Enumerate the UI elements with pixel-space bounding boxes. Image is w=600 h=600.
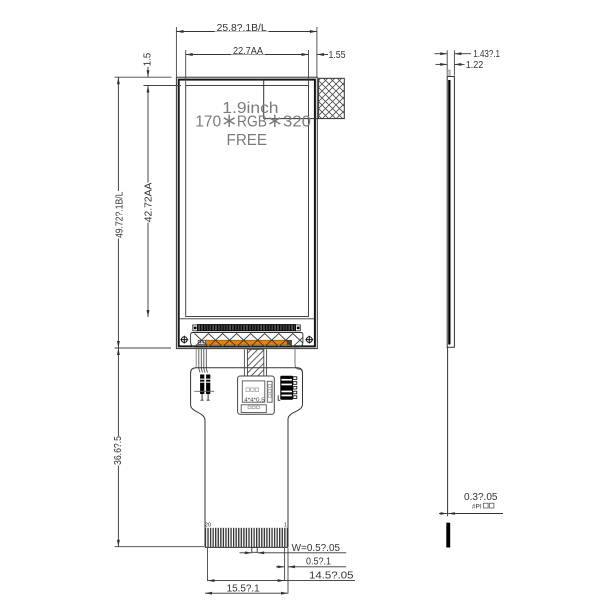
svg-text:25.8?.1B/L: 25.8?.1B/L xyxy=(217,23,268,34)
svg-text:320: 320 xyxy=(283,113,311,130)
svg-text:1.22: 1.22 xyxy=(466,60,484,71)
svg-text:1.5: 1.5 xyxy=(143,53,154,67)
svg-text:W=0.5?.05: W=0.5?.05 xyxy=(292,543,340,554)
svg-text:0.3?.05: 0.3?.05 xyxy=(464,492,498,503)
svg-text:42.72AA: 42.72AA xyxy=(144,182,155,222)
svg-text:170: 170 xyxy=(195,113,221,130)
svg-text:FREE: FREE xyxy=(227,132,268,149)
svg-text:15.5?.1: 15.5?.1 xyxy=(227,584,260,595)
svg-text:4*4*0.5: 4*4*0.5 xyxy=(244,397,265,403)
svg-text:14.5?.05: 14.5?.05 xyxy=(309,571,354,582)
svg-text:20: 20 xyxy=(205,523,211,529)
svg-text:1: 1 xyxy=(284,523,287,529)
svg-text:0.5?.1: 0.5?.1 xyxy=(306,557,331,568)
svg-text:1.43?.1: 1.43?.1 xyxy=(473,49,500,60)
svg-text:49.72?.1B/L: 49.72?.1B/L xyxy=(115,191,126,238)
svg-text:22.7AA: 22.7AA xyxy=(233,46,264,57)
svg-text:36.6?.5: 36.6?.5 xyxy=(113,436,124,465)
svg-text:1.55: 1.55 xyxy=(329,50,346,61)
svg-text:RGB: RGB xyxy=(237,113,267,130)
svg-text:#PI: #PI xyxy=(472,504,482,511)
